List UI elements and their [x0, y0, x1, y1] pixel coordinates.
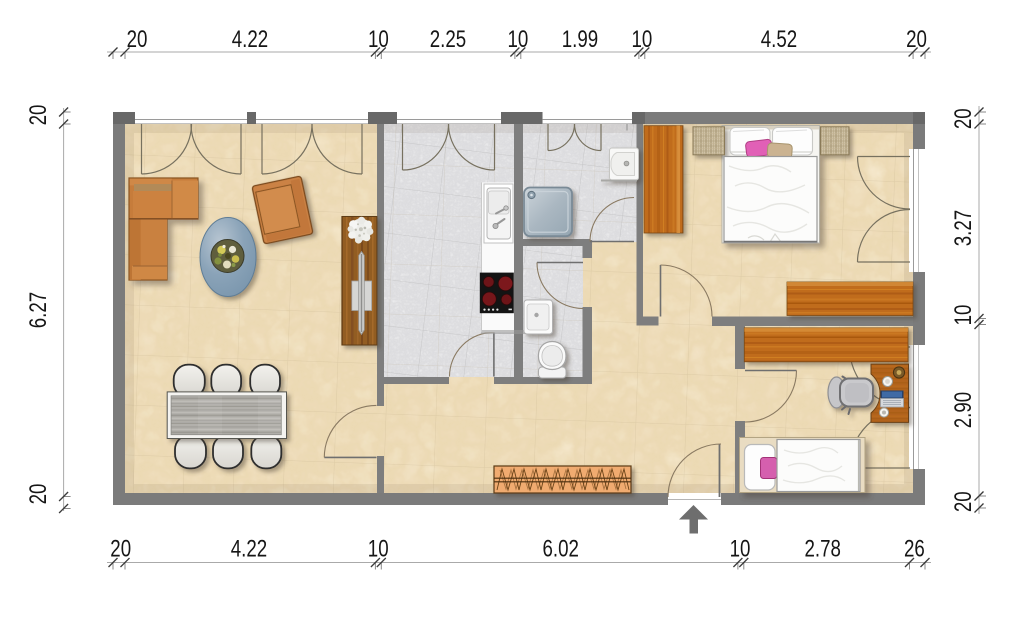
svg-text:10: 10	[507, 26, 528, 53]
svg-text:10: 10	[631, 26, 652, 53]
svg-text:3.27: 3.27	[950, 210, 977, 246]
svg-text:4.22: 4.22	[231, 535, 267, 562]
svg-text:10: 10	[368, 535, 389, 562]
svg-text:6.27: 6.27	[25, 292, 52, 328]
svg-text:2.90: 2.90	[950, 392, 977, 428]
svg-text:4.52: 4.52	[761, 26, 797, 53]
svg-text:6.02: 6.02	[542, 535, 578, 562]
svg-text:1.99: 1.99	[562, 26, 598, 53]
svg-text:20: 20	[25, 105, 52, 126]
svg-text:20: 20	[950, 491, 977, 512]
svg-text:4.22: 4.22	[232, 26, 268, 53]
svg-text:10: 10	[730, 535, 751, 562]
svg-text:20: 20	[25, 484, 52, 505]
svg-text:10: 10	[950, 305, 977, 326]
svg-text:10: 10	[368, 26, 389, 53]
svg-text:20: 20	[906, 26, 927, 53]
svg-text:20: 20	[110, 535, 131, 562]
svg-text:26: 26	[904, 535, 925, 562]
svg-text:20: 20	[127, 26, 148, 53]
svg-text:2.78: 2.78	[804, 535, 840, 562]
svg-text:20: 20	[950, 108, 977, 129]
svg-text:2.25: 2.25	[430, 26, 466, 53]
